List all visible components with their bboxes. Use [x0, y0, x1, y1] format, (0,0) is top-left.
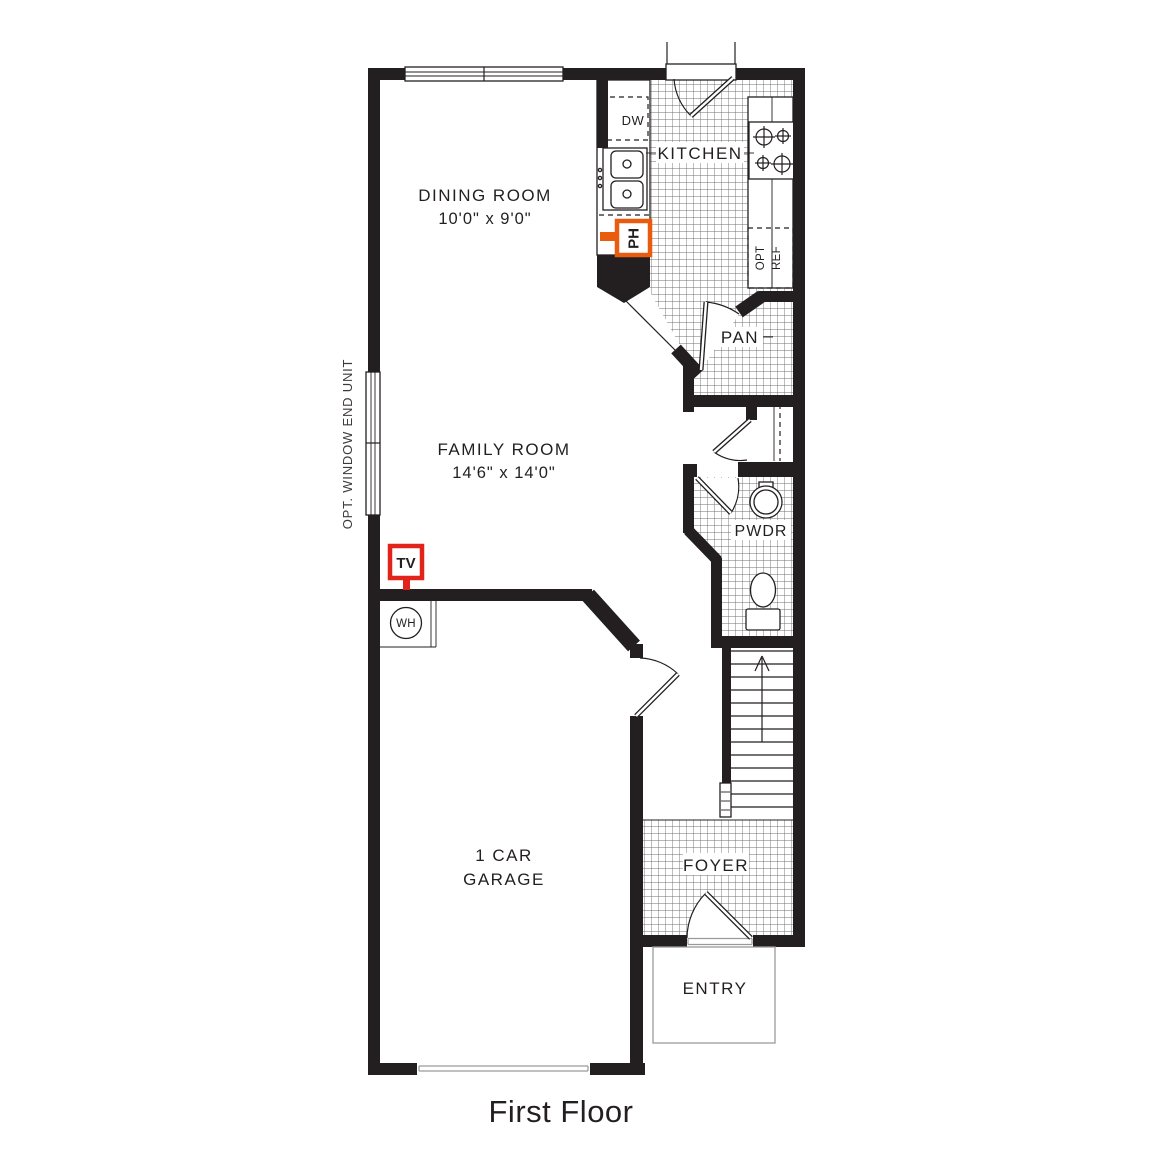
opt-ref-label-line2: REF	[771, 246, 783, 270]
right-exterior-wall	[793, 68, 805, 947]
garage-label-line1: 1 CAR	[475, 846, 533, 865]
left-exterior-wall	[368, 68, 380, 1075]
family-garage-wall	[368, 589, 592, 601]
foyer-bottom-wall-segment	[753, 935, 805, 947]
garage-label-line2: GARAGE	[463, 870, 545, 889]
floor-plan-page: DW	[0, 0, 1150, 1170]
stair-left-wall	[722, 637, 731, 783]
stair-rail-cap	[720, 783, 731, 817]
closet-door-stub	[746, 402, 757, 420]
pantry-label: PAN	[721, 328, 759, 347]
dining-window	[405, 67, 563, 81]
garage-right-wall-segment	[630, 716, 643, 1075]
tv-jack-label: TV	[396, 555, 415, 572]
hall-closet-door	[714, 420, 750, 461]
water-heater-label: WH	[396, 618, 416, 630]
powder-left-wall-lower	[711, 558, 722, 638]
powder-top-wall-right	[738, 462, 793, 477]
powder-left-wall-upper	[683, 464, 694, 533]
kitchen-label: KITCHEN	[657, 144, 742, 163]
garage-right-wall-segment	[630, 644, 643, 658]
phone-jack-label: PH	[626, 228, 643, 249]
kitchen-sink	[598, 148, 647, 210]
garage-bottom-wall-segment	[368, 1063, 417, 1075]
front-door-threshold	[687, 935, 753, 947]
dishwasher-label: DW	[622, 113, 645, 128]
plan-title: First Floor	[489, 1094, 634, 1129]
water-heater-closet: WH	[380, 601, 436, 647]
family-room-window	[366, 372, 380, 515]
fridge-nook-wall	[759, 291, 793, 302]
kitchen-left-wall	[597, 80, 608, 148]
faucet-dot	[598, 168, 601, 171]
opt-ref-label-line1: OPT	[755, 246, 767, 271]
garage-diagonal-wall	[588, 595, 634, 646]
floor-plan: DW	[0, 0, 1150, 1170]
foyer-label: FOYER	[683, 856, 749, 875]
foyer-bottom-wall-segment	[643, 935, 687, 947]
kitchen-door-threshold	[666, 42, 736, 80]
garage-entry-door	[636, 658, 678, 716]
family-room-label: FAMILY ROOM	[437, 440, 570, 459]
pantry-bottom-wall	[683, 395, 793, 407]
kitchen-corner-wall	[597, 255, 650, 303]
window-option-note: OPT. WINDOW END UNIT	[340, 359, 355, 530]
faucet-dot	[598, 184, 601, 187]
hall-closet	[774, 404, 780, 461]
top-wall-segment	[368, 68, 405, 80]
stove	[749, 122, 795, 179]
dining-room-dims: 10'0" x 9'0"	[438, 210, 531, 228]
family-room-dims: 14'6" x 14'0"	[452, 464, 556, 482]
top-wall-segment	[563, 68, 667, 80]
garage-door	[417, 1063, 590, 1075]
faucet-dot	[598, 176, 601, 179]
entry-label: ENTRY	[683, 979, 748, 998]
dining-room-label: DINING ROOM	[418, 186, 552, 205]
powder-label: PWDR	[735, 523, 788, 540]
tv-jack: TV	[390, 546, 422, 590]
